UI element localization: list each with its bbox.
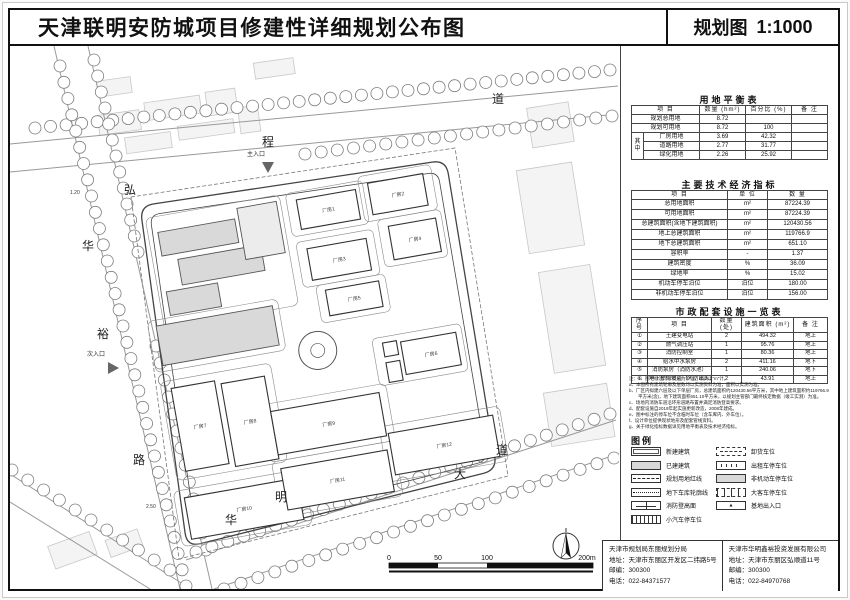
street-tree	[574, 463, 586, 475]
table-cell: 地下总建筑面积	[632, 240, 728, 250]
street-tree	[10, 464, 18, 476]
table-cell: 总建筑面积(含地下建筑面积)	[632, 220, 728, 230]
street-tree	[506, 486, 518, 498]
table-cell: 数 量	[768, 191, 828, 200]
site-entrance-icon	[716, 501, 746, 510]
bus-parking-icon	[716, 488, 746, 497]
street-tree	[433, 81, 445, 93]
legend-item: 出租车停车位	[716, 461, 793, 470]
table-cell: 地上	[794, 341, 828, 350]
table-cell: 240.06	[742, 367, 794, 376]
table-group-label: 其中	[632, 133, 644, 160]
drawing-type-label: 规划图	[693, 14, 747, 40]
street-tree	[606, 110, 618, 122]
car-parking-icon	[631, 515, 661, 524]
land-use-table: 项 目 数量 (hm²) 百分比 (%) 备 注 规划总用地 8.72 规划可用…	[631, 105, 828, 160]
street-tree	[590, 112, 602, 124]
street-tree	[464, 78, 476, 90]
street-tree	[122, 113, 134, 125]
street-tree	[604, 408, 616, 420]
table-cell: 2	[712, 333, 742, 342]
table-cell: ②	[632, 341, 648, 350]
table-cell: 泊位	[728, 290, 768, 300]
street-tree	[184, 106, 196, 118]
street-tree	[557, 469, 569, 481]
street-tree	[121, 198, 133, 210]
street-tree	[354, 537, 366, 549]
street-tree	[148, 554, 160, 566]
drawing-scale: 1:1000	[756, 17, 812, 38]
street-tree	[269, 566, 281, 578]
site-plan-map: 厂房1 厂房2 厂房3 厂房4 厂房5 厂房6 厂房7 厂房8 厂房9 厂房10…	[10, 46, 619, 589]
street-tree	[293, 95, 305, 107]
table-cell: 2.26	[700, 151, 746, 160]
table-cell: 15.02	[768, 270, 828, 280]
legend-item: 地下车库轮廓线	[631, 488, 708, 497]
table-cell: 总用地面积	[632, 200, 728, 210]
street-tree	[405, 520, 417, 532]
legend-item: 规划用地红线	[631, 474, 708, 483]
existing-buildings	[138, 201, 301, 365]
street-tree	[82, 174, 94, 186]
street-tree	[125, 214, 137, 226]
street-tree	[92, 70, 104, 82]
table-cell: 数量 (处)	[712, 318, 742, 333]
street-tree	[574, 114, 586, 126]
street-tree	[320, 549, 332, 561]
street-tree	[69, 504, 81, 516]
road-label: 道	[496, 443, 508, 457]
street-tree	[176, 564, 188, 576]
legend-item: 已建建筑	[631, 461, 708, 470]
street-tree	[89, 206, 101, 218]
scale-tick: 100	[481, 555, 493, 562]
info-panel: 用地平衡表 项 目 数量 (hm²) 百分比 (%) 备 注 规划总用地 8.7…	[621, 46, 838, 540]
entrance-arrow-icon	[262, 162, 274, 173]
main-entrance-label: 主入口	[247, 150, 265, 158]
table-cell: m²	[728, 200, 768, 210]
road-label: 道	[492, 92, 504, 106]
facilities-table: 序号项 目数量 (处)建筑面积 (m²)备 注①土建变电站2494.32地上②燃…	[631, 317, 828, 384]
building: 厂房12	[388, 415, 500, 475]
authority-zip: 邮编：300300	[609, 566, 717, 577]
table-cell: 87224.39	[768, 200, 828, 210]
north-arrow-icon	[553, 528, 579, 559]
street-tree	[137, 401, 149, 413]
road-label: 华	[225, 513, 237, 527]
legend-item: 小汽车停车位	[631, 515, 708, 524]
table-cell: 地上	[794, 350, 828, 359]
street-tree	[526, 72, 538, 84]
street-tree	[540, 429, 552, 441]
road-label: 大	[454, 467, 466, 481]
table-cell: %	[728, 260, 768, 270]
street-tree	[472, 498, 484, 510]
street-tree	[95, 86, 107, 98]
legend-column-right: 卸货车位出租车停车位非机动车停车位大客车停车位基地出入口	[716, 447, 793, 524]
street-tree	[402, 84, 414, 96]
legend-item: 卸货车位	[716, 447, 793, 456]
street-tree	[114, 166, 126, 178]
street-tree	[444, 130, 456, 142]
table-cell: 地下	[794, 358, 828, 367]
authority-name: 天津市规划局东丽规划分局	[609, 545, 717, 556]
table-cell: 87224.39	[768, 210, 828, 220]
table-cell: 土建变电站	[648, 333, 712, 342]
street-tree	[93, 223, 105, 235]
street-tree	[303, 555, 315, 567]
unload-parking-icon	[716, 447, 746, 456]
notes-block: 注：1、图中标注尺寸以米为单位，标高以“m”计。a、本图所有建筑轮廓及层数均以实…	[629, 376, 831, 430]
table-cell: m²	[728, 210, 768, 220]
street-tree	[103, 118, 115, 130]
table-cell: 建筑面积 (m²)	[742, 318, 794, 333]
developer-address: 地址：天津市东丽区弘顺道11号	[729, 556, 833, 567]
street-tree	[286, 560, 298, 572]
table-cell: 绿地率	[632, 270, 728, 280]
street-tree	[511, 73, 523, 85]
table-cell: 可用地面积	[632, 210, 728, 220]
street-tree	[153, 110, 165, 122]
street-tree	[128, 230, 140, 242]
table-cell: 泊位	[728, 280, 768, 290]
building: 厂房5	[325, 281, 383, 316]
table-cell: 180.00	[768, 280, 828, 290]
street-tree	[70, 125, 82, 137]
building: 厂房9	[271, 392, 387, 454]
street-tree	[371, 88, 383, 100]
road-label: 明	[275, 490, 287, 504]
street-tree	[386, 86, 398, 98]
street-tree	[493, 124, 505, 136]
fire-lane-icon	[631, 501, 661, 510]
table-cell: 100	[746, 124, 792, 133]
street-tree	[348, 142, 360, 154]
table-cell: ③	[632, 350, 648, 359]
street-tree	[101, 524, 113, 536]
table-header: 数量 (hm²)	[700, 106, 746, 115]
roundabout	[296, 328, 340, 372]
legend-label: 已建建筑	[666, 461, 690, 470]
street-tree	[252, 572, 264, 584]
street-tree	[110, 150, 122, 162]
street-tree	[331, 144, 343, 156]
table-cell: 2	[712, 358, 742, 367]
legend-label: 消防登高面	[666, 501, 696, 510]
table-cell: 1	[712, 350, 742, 359]
table-cell: 25.92	[746, 151, 792, 160]
street-tree	[480, 77, 492, 89]
street-tree	[22, 474, 34, 486]
table-cell: 机动车停车泊位	[632, 280, 728, 290]
table-cell: -	[728, 250, 768, 260]
road-label: 裕	[97, 326, 109, 341]
street-tree	[541, 118, 553, 130]
road-label: 弘	[124, 183, 136, 197]
street-tree	[169, 108, 181, 120]
street-tree	[591, 458, 603, 470]
street-tree	[190, 546, 202, 558]
utility-structure	[382, 341, 398, 357]
table-cell: 地下	[794, 367, 828, 376]
table-cell: 消防控制室	[648, 350, 712, 359]
table-cell: 1	[712, 367, 742, 376]
street-tree	[180, 580, 192, 589]
legend-item: 非机动车停车位	[716, 474, 793, 483]
street-tree	[588, 413, 600, 425]
table-header: 备 注	[792, 106, 828, 115]
site-plan-svg: 厂房1 厂房2 厂房3 厂房4 厂房5 厂房6 厂房7 厂房8 厂房9 厂房10…	[10, 46, 619, 589]
street-tree	[117, 320, 129, 332]
street-tree	[86, 190, 98, 202]
street-tree	[99, 102, 111, 114]
street-tree	[418, 83, 430, 95]
street-tree	[380, 138, 392, 150]
street-tree	[138, 111, 150, 123]
building: 厂房4	[388, 218, 441, 260]
legend-title: 图例	[631, 434, 653, 447]
table-cell: 1.37	[768, 250, 828, 260]
street-tree	[156, 483, 168, 495]
table-cell: 1	[712, 341, 742, 350]
table-cell: 绿化用地	[644, 151, 700, 160]
table-cell: m²	[728, 240, 768, 250]
legend-label: 地下车库轮廓线	[666, 488, 708, 497]
table-cell: 42.32	[746, 133, 792, 142]
legend-label: 出租车停车位	[751, 461, 787, 470]
table-cell: 8.72	[700, 115, 746, 124]
street-tree	[109, 288, 121, 300]
street-tree	[262, 99, 274, 111]
table-cell: 规划总用地	[632, 115, 700, 124]
street-tree	[495, 75, 507, 87]
secondary-entrance-label: 次入口	[87, 350, 105, 358]
indicators-table: 项 目单 位数 量总用地面积m²87224.39可用地面积m²87224.39总…	[631, 190, 828, 300]
street-tree	[54, 60, 66, 72]
street-tree	[509, 122, 521, 134]
street-tree	[164, 564, 176, 576]
street-tree	[556, 424, 568, 436]
street-tree	[388, 526, 400, 538]
developer-zip: 邮编：300300	[729, 566, 833, 577]
street-tree	[309, 94, 321, 106]
street-tree	[461, 128, 473, 140]
street-tree	[340, 91, 352, 103]
street-tree	[589, 66, 601, 78]
building: 厂房6	[401, 332, 462, 374]
table-cell: 3.69	[700, 133, 746, 142]
developer-tel: 电话：022-84970768	[729, 577, 833, 588]
table-cell	[792, 115, 828, 124]
table-cell: 411.16	[742, 358, 794, 367]
street-tree	[489, 492, 501, 504]
table-cell: 651.10	[768, 240, 828, 250]
table-cell: 厂房用地	[644, 133, 700, 142]
street-tree	[558, 116, 570, 128]
street-tree	[29, 122, 41, 134]
page-title: 天津联明安防城项目修建性详细规划公布图	[10, 10, 666, 44]
street-tree	[355, 89, 367, 101]
street-tree	[113, 304, 125, 316]
authority-address: 地址：天津市东丽区开发区二纬路5号	[609, 556, 717, 567]
table-cell: 地上	[794, 333, 828, 342]
street-tree	[573, 67, 585, 79]
elevation-label: 2.50	[146, 504, 156, 510]
street-tree	[371, 532, 383, 544]
street-tree	[168, 531, 180, 543]
existing-building-icon	[631, 461, 661, 470]
street-tree	[524, 435, 536, 447]
table-header: 项 目	[632, 106, 700, 115]
street-tree	[117, 534, 129, 546]
legend-item: 消防登高面	[631, 501, 708, 510]
street-tree	[247, 100, 259, 112]
new-building-icon	[631, 447, 661, 456]
table-cell	[792, 142, 828, 151]
legend-item: 大客车停车位	[716, 488, 793, 497]
table-cell: 消防泵房（消防水池）	[648, 367, 712, 376]
table-cell: 备 注	[794, 318, 828, 333]
table-cell: ④	[632, 358, 648, 367]
street-tree	[200, 105, 212, 117]
building: 厂房7	[171, 381, 229, 471]
street-tree	[105, 271, 117, 283]
street-tree	[91, 116, 103, 128]
road-label: 路	[133, 452, 145, 467]
street-tree	[422, 515, 434, 527]
street-tree	[299, 148, 311, 160]
street-tree	[66, 109, 78, 121]
table-cell: 序号	[632, 318, 648, 333]
table-header: 百分比 (%)	[746, 106, 792, 115]
street-tree	[438, 509, 450, 521]
street-tree	[160, 499, 172, 511]
street-tree	[509, 440, 521, 452]
authority-tel: 电话：022-84371577	[609, 577, 717, 588]
street-tree	[315, 146, 327, 158]
table-cell: 36.09	[768, 260, 828, 270]
street-tree	[145, 434, 157, 446]
street-tree	[216, 103, 228, 115]
table-cell: 80.36	[742, 350, 794, 359]
building: 厂房11	[281, 450, 395, 510]
table-cell: 容积率	[632, 250, 728, 260]
table-cell: ⑤	[632, 367, 648, 376]
legend-label: 非机动车停车位	[751, 474, 793, 483]
road-label: 华	[82, 239, 94, 253]
table-cell: 156.00	[768, 290, 828, 300]
legend-item: 新建建筑	[631, 447, 708, 456]
street-tree	[149, 450, 161, 462]
table-cell: ①	[632, 333, 648, 342]
street-tree	[542, 70, 554, 82]
street-tree	[141, 418, 153, 430]
table-cell: 120430.56	[768, 220, 828, 230]
street-tree	[324, 92, 336, 104]
street-tree	[608, 452, 619, 464]
legend-label: 新建建筑	[666, 447, 690, 456]
scale-tick: 50	[434, 555, 442, 562]
street-tree	[428, 132, 440, 144]
street-tree	[101, 255, 113, 267]
legend-column-left: 新建建筑已建建筑规划用地红线地下车库轮廓线消防登高面小汽车停车位	[631, 447, 708, 524]
table-cell: 规划可用地	[632, 124, 700, 133]
street-tree	[278, 97, 290, 109]
street-tree	[129, 369, 141, 381]
street-tree	[38, 484, 50, 496]
taxi-parking-icon	[716, 461, 746, 470]
street-tree	[572, 419, 584, 431]
street-tree	[337, 543, 349, 555]
table-cell: %	[728, 270, 768, 280]
title-bar: 天津联明安防城项目修建性详细规划公布图 规划图 1:1000	[10, 10, 838, 46]
table-cell: 95.76	[742, 341, 794, 350]
street-tree	[85, 514, 97, 526]
street-tree	[525, 120, 537, 132]
red-line-icon	[631, 474, 661, 483]
street-tree	[455, 503, 467, 515]
legend-label: 小汽车停车位	[666, 515, 702, 524]
street-tree	[523, 481, 535, 493]
table-cell	[746, 115, 792, 124]
table-cell: 给水中水泵房	[648, 358, 712, 367]
street-tree	[540, 475, 552, 487]
table-cell: 项 目	[632, 191, 728, 200]
legend-item: 基地出入口	[716, 501, 793, 510]
entrance-arrow-icon	[108, 362, 119, 374]
street-tree	[106, 134, 118, 146]
building: 厂房1	[296, 189, 360, 229]
table-cell: m²	[728, 220, 768, 230]
table-cell: 单 位	[728, 191, 768, 200]
scale-bar: 0 50 100 200m	[387, 555, 596, 573]
utility-structure	[386, 360, 403, 382]
street-tree	[78, 158, 90, 170]
table-cell: 地上总建筑面积	[632, 230, 728, 240]
drawing-type-box: 规划图 1:1000	[666, 10, 838, 44]
street-tree	[364, 140, 376, 152]
scale-tick: 0	[387, 555, 391, 562]
table-cell: 建筑密度	[632, 260, 728, 270]
street-tree	[97, 239, 109, 251]
street-tree	[449, 80, 461, 92]
table-cell: 494.32	[742, 333, 794, 342]
table-cell: 道路用地	[644, 142, 700, 151]
table-cell	[792, 124, 828, 133]
street-tree	[121, 336, 133, 348]
table-cell: m²	[728, 230, 768, 240]
title-block: 天津市规划局东丽规划分局 地址：天津市东丽区开发区二纬路5号 邮编：300300…	[602, 540, 838, 591]
moto-parking-icon	[716, 474, 746, 483]
table-cell	[792, 151, 828, 160]
building: 厂房8	[221, 376, 279, 466]
underground-outline-icon	[631, 488, 661, 497]
street-tree	[231, 102, 243, 114]
elevation-label: 1.20	[70, 190, 80, 196]
authority-info: 天津市规划局东丽规划分局 地址：天津市东丽区开发区二纬路5号 邮编：300300…	[603, 541, 723, 591]
legend-label: 基地出入口	[751, 501, 781, 510]
street-tree	[477, 126, 489, 138]
legend-label: 卸货车位	[751, 447, 775, 456]
table-cell	[792, 133, 828, 142]
table-cell: 非机动车停车泊位	[632, 290, 728, 300]
street-tree	[133, 385, 145, 397]
street-tree	[235, 577, 247, 589]
table-cell: 119766.9	[768, 230, 828, 240]
street-tree	[45, 120, 57, 132]
table-cell: 8.72	[700, 124, 746, 133]
legend-label: 大客车停车位	[751, 488, 787, 497]
